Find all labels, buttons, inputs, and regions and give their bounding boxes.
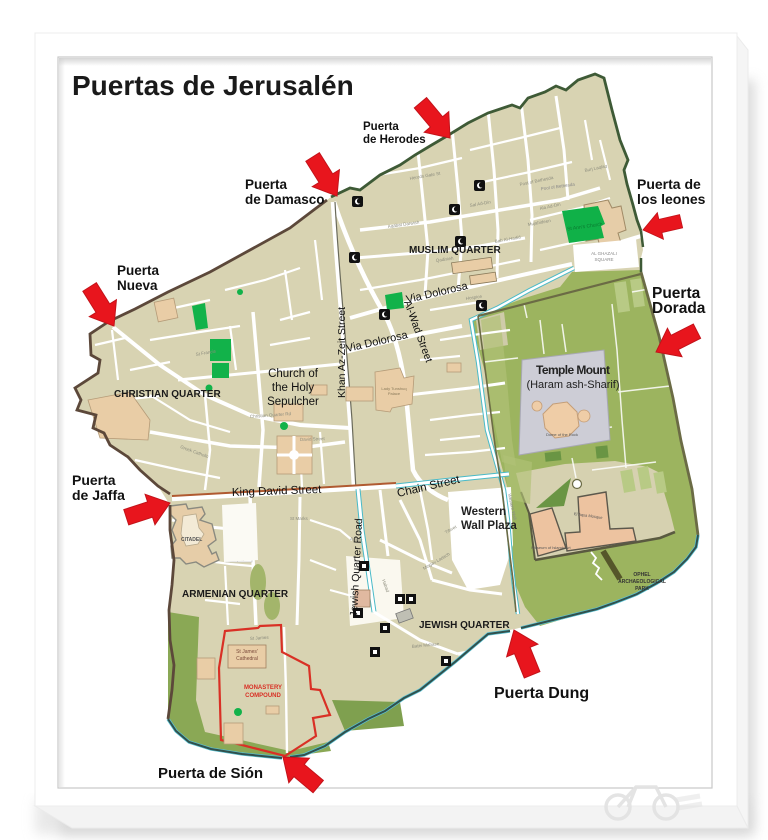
svg-text:David Street: David Street xyxy=(300,436,326,442)
svg-text:Puerta: Puerta xyxy=(363,121,399,133)
svg-text:MONASTERY: MONASTERY xyxy=(244,685,282,691)
svg-text:PARK: PARK xyxy=(635,586,649,592)
svg-text:Puerta Dung: Puerta Dung xyxy=(494,685,589,702)
svg-text:Puerta de Sión: Puerta de Sión xyxy=(158,765,263,782)
svg-text:(Haram ash-Sharif): (Haram ash-Sharif) xyxy=(527,379,620,391)
svg-text:ARMENIAN QUARTER: ARMENIAN QUARTER xyxy=(182,589,289,600)
svg-text:Puerta: Puerta xyxy=(117,263,160,278)
svg-text:Palace: Palace xyxy=(388,391,401,396)
svg-text:St James': St James' xyxy=(236,649,258,655)
svg-text:Temple Mount: Temple Mount xyxy=(536,363,610,377)
svg-text:Puerta: Puerta xyxy=(72,472,116,488)
svg-text:Puerta de: Puerta de xyxy=(637,176,701,192)
svg-text:JEWISH QUARTER: JEWISH QUARTER xyxy=(419,620,510,631)
svg-text:Puerta: Puerta xyxy=(245,177,288,192)
svg-text:St Marks: St Marks xyxy=(290,516,309,521)
svg-text:los leones: los leones xyxy=(637,191,706,207)
svg-text:ARCHAEOLOGICAL: ARCHAEOLOGICAL xyxy=(618,579,666,585)
svg-text:Khan Az-Zeit Street: Khan Az-Zeit Street xyxy=(336,307,348,398)
svg-text:AL GHAZALI: AL GHAZALI xyxy=(591,251,617,256)
svg-text:CITADEL: CITADEL xyxy=(181,537,202,543)
svg-text:Dome of the Rock: Dome of the Rock xyxy=(546,432,578,437)
svg-text:de Jaffa: de Jaffa xyxy=(72,487,125,503)
svg-text:the Holy: the Holy xyxy=(272,382,314,394)
svg-text:Cathedral: Cathedral xyxy=(236,656,258,662)
svg-text:Dorada: Dorada xyxy=(652,300,706,317)
svg-text:SQUARE: SQUARE xyxy=(594,257,613,262)
svg-text:Sepulcher: Sepulcher xyxy=(267,396,319,408)
svg-text:MUSLIM QUARTER: MUSLIM QUARTER xyxy=(409,245,501,256)
svg-text:de Herodes: de Herodes xyxy=(363,134,426,146)
svg-text:Puertas de Jerusalén: Puertas de Jerusalén xyxy=(72,70,354,101)
svg-text:Museum of Islamic Art: Museum of Islamic Art xyxy=(531,545,571,550)
svg-text:CHRISTIAN QUARTER: CHRISTIAN QUARTER xyxy=(114,389,221,400)
svg-text:COMPOUND: COMPOUND xyxy=(245,693,281,699)
svg-text:Wall Plaza: Wall Plaza xyxy=(461,520,517,532)
svg-text:OPHEL: OPHEL xyxy=(633,572,650,578)
svg-text:Nueva: Nueva xyxy=(117,278,158,293)
svg-text:Western: Western xyxy=(461,506,506,518)
svg-text:de Damasco: de Damasco xyxy=(245,192,325,207)
svg-text:Church of: Church of xyxy=(268,368,319,380)
